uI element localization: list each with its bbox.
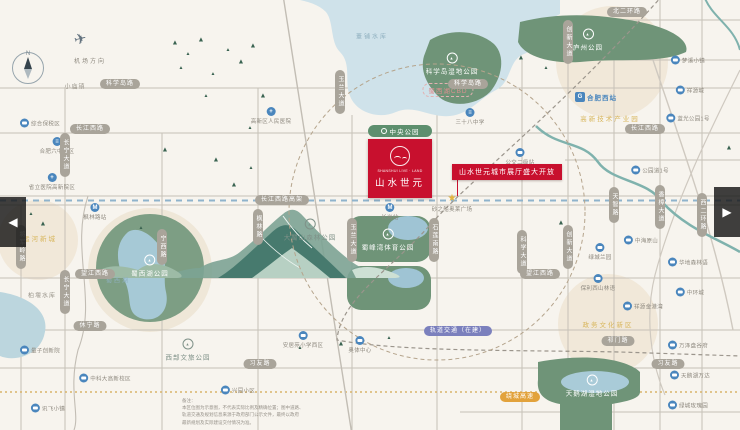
poi-label: 安居苑小学西区 <box>283 341 324 349</box>
tree-icon: ▲ <box>238 59 245 66</box>
project-emblem-icon <box>390 146 410 166</box>
park-label-text: 西部文旅公园 <box>166 355 211 362</box>
bus-poi: 梦溪小镇 <box>671 56 705 65</box>
park-icon: ▲ <box>583 29 594 40</box>
compass-needle-icon <box>24 57 32 69</box>
road-name-pill: 祁门路 <box>601 336 634 346</box>
poi-label: 天鹅湖万达 <box>681 371 710 379</box>
bus-icon <box>668 341 677 350</box>
road-name-pill: 长宁大道 <box>60 270 70 314</box>
park-icon: ▲ <box>447 53 458 64</box>
bus-icon <box>624 236 633 245</box>
park-icon: ▲ <box>145 255 156 266</box>
poi-label: 中环城 <box>687 288 704 296</box>
tree-icon: ▲ <box>726 145 733 152</box>
compass-needle-tail <box>24 69 32 79</box>
bus-icon <box>20 119 29 128</box>
poi-label: 保利西山林语 <box>581 284 616 292</box>
district-label: 小庙镇 <box>64 82 85 91</box>
bus-icon <box>20 346 29 355</box>
train-poi: G合肥西站 <box>575 92 617 102</box>
park-label: ▲庐州公园 <box>573 29 603 52</box>
central-park-tag-label: 中央公园 <box>390 126 420 136</box>
tree-icon: ▲ <box>179 65 184 71</box>
road-name-pill: 长江西路 <box>70 124 110 134</box>
poi-label: 高新区人民医院 <box>251 117 292 125</box>
tree-icon: ▲ <box>249 165 254 171</box>
bus-poi: 万泽盘谷府 <box>668 341 708 350</box>
bus-poi: 中科大高新校区 <box>79 374 131 383</box>
tree-icon: ▲ <box>29 211 34 217</box>
park-icon: ▲ <box>587 375 598 386</box>
bus-icon <box>676 288 685 297</box>
bus-icon <box>595 243 604 252</box>
bus-icon <box>671 56 680 65</box>
bus-poi: 公园道1号 <box>631 166 669 175</box>
train-icon: G <box>575 92 585 102</box>
tree-icon: ▲ <box>162 147 169 154</box>
showroom-banner-pointer <box>457 178 458 196</box>
park-icon: ▲ <box>183 339 194 350</box>
road-name-pill: 玉兰大道 <box>347 218 357 262</box>
bus-poi: 蓝光公园1号 <box>666 114 709 123</box>
bus-poi: 兴园小区 <box>221 386 255 395</box>
metro-poi: M枫林路站 <box>83 203 106 221</box>
poi-label: 三十八中学 <box>455 118 484 126</box>
park-icon: ▲ <box>305 219 316 230</box>
district-label: 高新技术产业园 <box>580 113 640 123</box>
district-label: 柏堰水库 <box>28 291 56 300</box>
bus-poi: 保利西山林语 <box>581 274 616 292</box>
bus-poi: 安居苑小学西区 <box>283 331 324 349</box>
location-map: N ✈ 机场方向 中央公园 SHANSHUI LIVE · LAND 山水世元 … <box>0 0 740 430</box>
bus-icon <box>676 86 685 95</box>
bus-icon <box>31 404 40 413</box>
bus-icon <box>355 336 364 345</box>
tree-icon: ▲ <box>40 221 47 228</box>
park-icon: ▲ <box>383 229 394 240</box>
metro-poi: M长岗站 <box>381 203 398 221</box>
poi-label: 中科大高新校区 <box>90 374 131 382</box>
bus-icon <box>631 166 640 175</box>
poi-label: 绿城兰园 <box>588 253 611 261</box>
metro-icon: M <box>90 203 99 212</box>
project-name-cn: 山水世元 <box>368 175 432 189</box>
tree-icon: ▲ <box>558 220 565 227</box>
road-name-pill: 长宁大道 <box>60 133 70 177</box>
bus-poi: 奥体中心 <box>348 336 371 354</box>
road-name-pill: 创新大道 <box>563 20 573 64</box>
park-label-text: 蜀峰湾体育公园 <box>362 245 415 252</box>
road-name-pill: 科学岛路 <box>448 79 488 89</box>
school-icon: ≡ <box>465 108 474 117</box>
map-canvas: N ✈ 机场方向 中央公园 SHANSHUI LIVE · LAND 山水世元 … <box>0 0 740 430</box>
bus-poi: 祥源金港湾 <box>623 302 663 311</box>
carousel-next-button[interactable]: ▶ <box>714 187 740 237</box>
poi-label: 枫林路站 <box>83 213 106 221</box>
leaf-icon <box>381 128 387 134</box>
bus-poi: 量子创新院 <box>20 346 60 355</box>
road-name-pill: 科学大道 <box>517 230 527 274</box>
road-name-pill: 石莲南路 <box>429 218 439 262</box>
poi-label: 奥体中心 <box>348 346 371 354</box>
poi-label: 万泽盘谷府 <box>679 341 708 349</box>
project-name-en: SHANSHUI LIVE · LAND <box>368 169 432 173</box>
airport-direction-label: 机场方向 <box>65 56 115 65</box>
poi-label: 华地森林语 <box>679 258 708 266</box>
bus-poi: 中环城 <box>676 288 704 297</box>
road-name-pill: 枫林路 <box>253 209 263 245</box>
bus-icon <box>79 374 88 383</box>
compass: N <box>12 52 44 84</box>
chevron-left-icon: ◀ <box>8 215 17 229</box>
star-icon: ★ <box>448 193 457 204</box>
hospital-icon: + <box>48 173 57 182</box>
park-label-text: 大蜀山森林公园 <box>284 235 337 242</box>
bus-icon <box>666 114 675 123</box>
tree-icon: ▲ <box>211 71 216 77</box>
hospital-poi: +高新区人民医院 <box>251 107 292 125</box>
bus-icon <box>594 274 603 283</box>
park-label-text: 蜀西湖公园 <box>131 271 169 278</box>
tree-icon: ▲ <box>172 40 179 47</box>
road-name-pill: 创新大道 <box>563 225 573 269</box>
park-label-text: 天鹅湖湿地公园 <box>566 391 619 398</box>
tree-icon: ▲ <box>213 157 220 164</box>
tree-icon: ▲ <box>248 125 253 131</box>
district-label: 运河新城 <box>23 233 57 243</box>
park-label: ▲天鹅湖湿地公园 <box>566 375 619 398</box>
water-label: 董铺水库 <box>356 32 388 41</box>
bus-poi: 讯飞小镇 <box>31 404 65 413</box>
bus-poi: 综合保税区 <box>20 119 60 128</box>
road-name-pill: 望江西路 <box>75 269 115 279</box>
poi-label: 祥源金港湾 <box>634 302 663 310</box>
tree-icon: ▲ <box>338 341 345 348</box>
district-label: 政务文化新区 <box>583 319 634 329</box>
poi-label: 合肥西站 <box>587 92 617 102</box>
bus-poi: 绿城兰园 <box>588 243 611 261</box>
project-marker[interactable]: SHANSHUI LIVE · LAND 山水世元 <box>368 139 432 198</box>
park-label: ▲西部文旅公园 <box>166 339 211 362</box>
map-disclaimer: 备注： 本区位图为示意图，不代表实际比例及精确位置；图中道路、 轨道交通及规划信… <box>182 397 350 426</box>
central-park-tag: 中央公园 <box>368 125 432 137</box>
park-label: ▲大蜀山森林公园 <box>284 219 337 242</box>
bus-poi: 绿城玫瑰园 <box>668 401 708 410</box>
park-label-text: 庐州公园 <box>573 45 603 52</box>
tree-icon: ▲ <box>186 51 191 57</box>
hospital-icon: + <box>266 107 275 116</box>
road-name-pill: 宁西路 <box>157 229 167 265</box>
poi-label: 梦溪小镇 <box>682 56 705 64</box>
road-name-pill: 习友路 <box>651 359 684 369</box>
park-label: ▲科学岛湿地公园 <box>426 53 479 76</box>
road-name-pill: 玉兰大道 <box>335 70 345 114</box>
carousel-prev-button[interactable]: ◀ <box>0 197 26 247</box>
park-label: ▲蜀峰湾体育公园 <box>362 229 415 252</box>
school-poi: ≡三十八中学 <box>455 108 484 126</box>
road-name-pill: 科学岛路 <box>100 79 140 89</box>
poi-label: 兴园小区 <box>232 386 255 394</box>
poi-label: 中海原山 <box>635 236 658 244</box>
bus-icon <box>515 148 524 157</box>
poi-label: 砂之船奥莱广场 <box>432 205 473 213</box>
poi-label: 综合保税区 <box>31 119 60 127</box>
road-name-pill: 习友路 <box>243 359 276 369</box>
poi-label: 祥源城 <box>687 86 704 94</box>
poi-label: 长岗站 <box>381 213 398 221</box>
bus-poi: 华地森林语 <box>668 258 708 267</box>
bus-icon <box>670 371 679 380</box>
star-poi: ★砂之船奥莱广场 <box>432 193 473 213</box>
road-name-pill: 轨道交通（在建） <box>424 326 492 336</box>
poi-label: 量子创新院 <box>31 346 60 354</box>
road-name-pill: 天智路 <box>609 187 619 223</box>
poi-label: 蓝光公园1号 <box>677 114 709 122</box>
road-name-pill: 北二环路 <box>607 7 647 17</box>
park-label-text: 科学岛湿地公园 <box>426 69 479 76</box>
chevron-right-icon: ▶ <box>722 205 731 219</box>
tree-icon: ▲ <box>544 65 549 71</box>
poi-label: 绿城玫瑰园 <box>679 401 708 409</box>
bus-poi: 天鹅湖万达 <box>670 371 710 380</box>
tree-icon: ▲ <box>139 225 144 231</box>
bus-icon <box>668 258 677 267</box>
bus-poi: 中海原山 <box>624 236 658 245</box>
road-name-pill: 长江西路高架 <box>255 195 309 205</box>
bus-icon <box>298 331 307 340</box>
road-name-pill: 绕城高速 <box>500 392 540 402</box>
poi-label: 讯飞小镇 <box>42 404 65 412</box>
bus-icon <box>623 302 632 311</box>
road-name-pill: 长江西路 <box>625 124 665 134</box>
road-name-pill: 休宁路 <box>73 321 106 331</box>
tree-icon: ▲ <box>198 37 205 44</box>
bus-poi: 祥源城 <box>676 86 704 95</box>
bus-icon <box>221 386 230 395</box>
tree-icon: ▲ <box>518 55 525 62</box>
showroom-banner: 山水世元城市展厅盛大开放 <box>452 164 562 180</box>
poi-label: 省立医院高新院区 <box>29 183 75 191</box>
tree-icon: ▲ <box>387 335 392 341</box>
tree-icon: ▲ <box>260 93 267 100</box>
poi-label: 公园道1号 <box>642 166 669 174</box>
road-name-pill: 西二环路 <box>697 193 707 237</box>
tree-icon: ▲ <box>250 43 257 50</box>
tree-icon: ▲ <box>226 47 231 53</box>
tree-icon: ▲ <box>204 93 209 99</box>
creek <box>704 0 740 50</box>
metro-icon: M <box>386 203 395 212</box>
tree-icon: ▲ <box>231 182 238 189</box>
bus-icon <box>668 401 677 410</box>
road-name-pill: 香樟大道 <box>655 185 665 229</box>
